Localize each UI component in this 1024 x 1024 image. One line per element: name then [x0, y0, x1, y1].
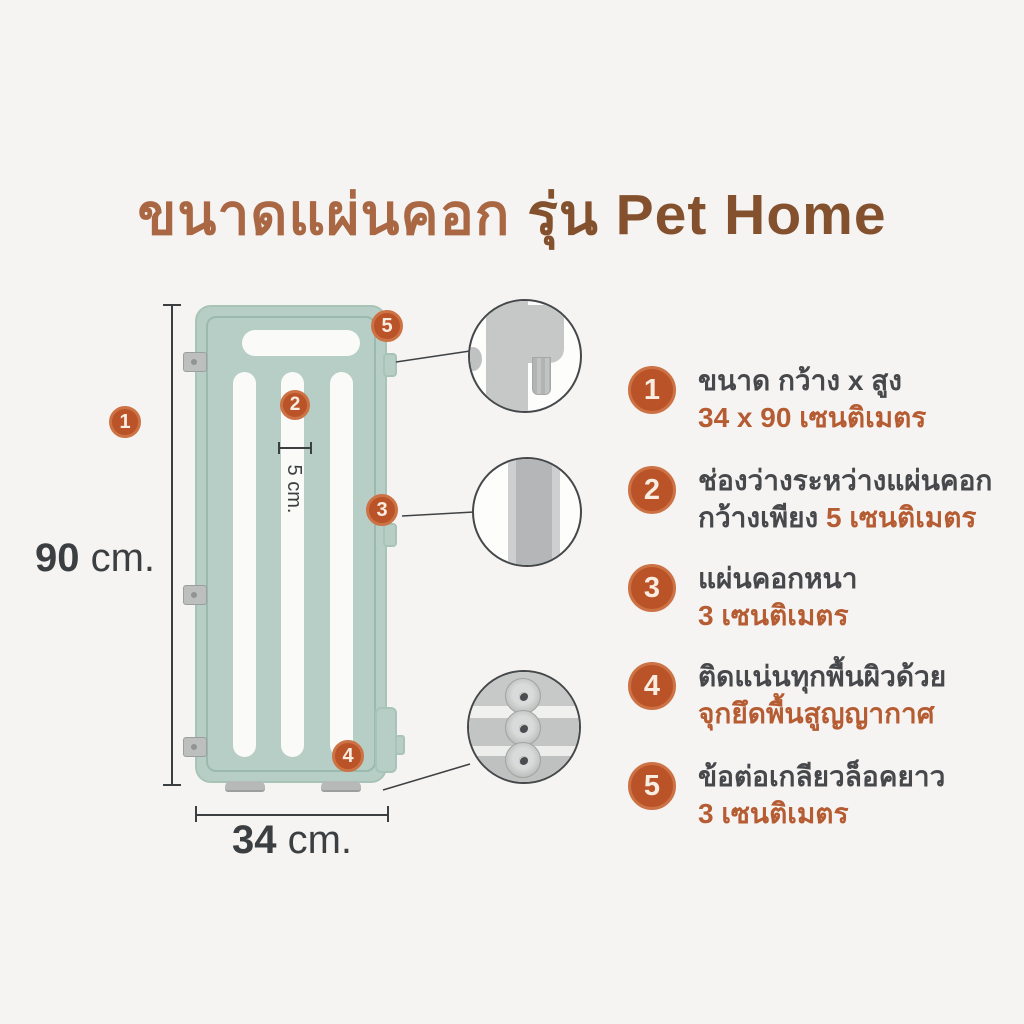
feature-item-thickness: 3 แผ่นคอกหนา 3 เซนติเมตร [628, 560, 857, 634]
feature-1-line2-highlight: 34 x 90 เซนติเมตร [698, 402, 926, 433]
gap-dimension-cap-left [278, 442, 280, 454]
feature-badge-2: 2 [628, 466, 676, 514]
feature-3-line1: แผ่นคอกหนา [698, 560, 857, 597]
width-dimension-cap-right [387, 806, 389, 822]
feature-text-1: ขนาด กว้าง x สูง 34 x 90 เซนติเมตร [698, 362, 926, 436]
feature-5-line2: 3 เซนติเมตร [698, 795, 945, 832]
fence-suction-foot-right [321, 781, 361, 792]
gap-label: 5 cm. [283, 457, 305, 521]
feature-4-line2-highlight: จุกยึดพื้นสูญญากาศ [698, 698, 935, 729]
connector-screw-peg [532, 357, 551, 395]
height-unit: cm. [91, 536, 155, 580]
feature-item-gap: 2 ช่องว่างระหว่างแผ่นคอก กว้างเพียง 5 เซ… [628, 462, 992, 536]
detail-circle-suction [467, 670, 581, 784]
feature-text-2: ช่องว่างระหว่างแผ่นคอก กว้างเพียง 5 เซนต… [698, 462, 992, 536]
gap-dimension-line [279, 447, 312, 449]
feature-text-3: แผ่นคอกหนา 3 เซนติเมตร [698, 560, 857, 634]
feature-badge-3: 3 [628, 564, 676, 612]
feature-1-line1: ขนาด กว้าง x สูง [698, 362, 926, 399]
feature-5-line1: ข้อต่อเกลียวล็อคยาว [698, 758, 945, 795]
feature-item-size: 1 ขนาด กว้าง x สูง 34 x 90 เซนติเมตร [628, 362, 926, 436]
feature-item-suction: 4 ติดแน่นทุกพื้นผิวด้วย จุกยึดพื้นสูญญาก… [628, 658, 946, 732]
feature-2-line2-highlight: 5 เซนติเมตร [826, 502, 977, 533]
feature-3-line2-highlight: 3 เซนติเมตร [698, 600, 849, 631]
gap-dimension-cap-right [310, 442, 312, 454]
suction-cup-icon [505, 678, 541, 714]
feature-2-line2-prefix: กว้างเพียง [698, 502, 826, 533]
connector-side-bump [468, 347, 482, 371]
height-dimension-cap-top [163, 304, 181, 306]
detail-circle-connector [468, 299, 582, 413]
height-label: 90 cm. [28, 536, 162, 581]
feature-2-line2: กว้างเพียง 5 เซนติเมตร [698, 499, 992, 536]
fence-slot-left [233, 372, 256, 757]
width-unit: cm. [288, 818, 352, 862]
connector-arm-shape [510, 305, 564, 363]
page-title: ขนาดแผ่นคอก รุ่น Pet Home [0, 170, 1024, 260]
page-title-product: ขนาดแผ่นคอก [137, 183, 510, 247]
fence-hinge-bottom [183, 737, 207, 757]
feature-5-line2-highlight: 3 เซนติเมตร [698, 798, 849, 829]
suction-cup-icon [505, 710, 541, 746]
panel-thickness-bar [508, 457, 560, 567]
feature-badge-5: 5 [628, 762, 676, 810]
callout-line-thickness [402, 512, 474, 516]
diagram-badge-5: 5 [371, 310, 403, 342]
width-dimension-cap-left [195, 806, 197, 822]
feature-1-line2: 34 x 90 เซนติเมตร [698, 399, 926, 436]
diagram-badge-3: 3 [366, 494, 398, 526]
diagram-badge-4: 4 [332, 740, 364, 772]
fence-slot-middle [281, 372, 304, 757]
width-dimension-line [196, 814, 388, 816]
feature-2-line1: ช่องว่างระหว่างแผ่นคอก [698, 462, 992, 499]
feature-3-line2: 3 เซนติเมตร [698, 597, 857, 634]
diagram-badge-1: 1 [109, 406, 141, 438]
fence-connector-peg-middle [383, 523, 397, 547]
infographic-canvas: ขนาดแผ่นคอก รุ่น Pet Home 90 cm. 34 cm. [0, 0, 1024, 1024]
feature-text-5: ข้อต่อเกลียวล็อคยาว 3 เซนติเมตร [698, 758, 945, 832]
feature-item-connector: 5 ข้อต่อเกลียวล็อคยาว 3 เซนติเมตร [628, 758, 945, 832]
fence-connector-peg-top [383, 353, 397, 377]
height-dimension-cap-bottom [163, 784, 181, 786]
fence-suction-foot-left [225, 781, 265, 792]
fence-handle-slot [242, 330, 360, 356]
fence-hinge-middle [183, 585, 207, 605]
suction-cup-icon [505, 742, 541, 778]
feature-4-line2: จุกยึดพื้นสูญญากาศ [698, 695, 946, 732]
diagram-badge-2: 2 [280, 390, 310, 420]
fence-connector-peg-bottom [395, 735, 405, 755]
feature-4-line1: ติดแน่นทุกพื้นผิวด้วย [698, 658, 946, 695]
feature-text-4: ติดแน่นทุกพื้นผิวด้วย จุกยึดพื้นสูญญากาศ [698, 658, 946, 732]
fence-panel-illustration [195, 305, 387, 783]
feature-badge-1: 1 [628, 366, 676, 414]
feature-badge-4: 4 [628, 662, 676, 710]
height-dimension-line [171, 305, 173, 785]
fence-hinge-top [183, 352, 207, 372]
width-value: 34 [232, 818, 277, 862]
fence-connector-lug-bottom [375, 707, 397, 773]
fence-slot-right [330, 372, 353, 757]
detail-circle-thickness [472, 457, 582, 567]
callout-line-connector [396, 351, 470, 362]
width-label: 34 cm. [208, 818, 376, 863]
page-title-model: รุ่น Pet Home [527, 183, 886, 247]
height-value: 90 [35, 536, 80, 580]
